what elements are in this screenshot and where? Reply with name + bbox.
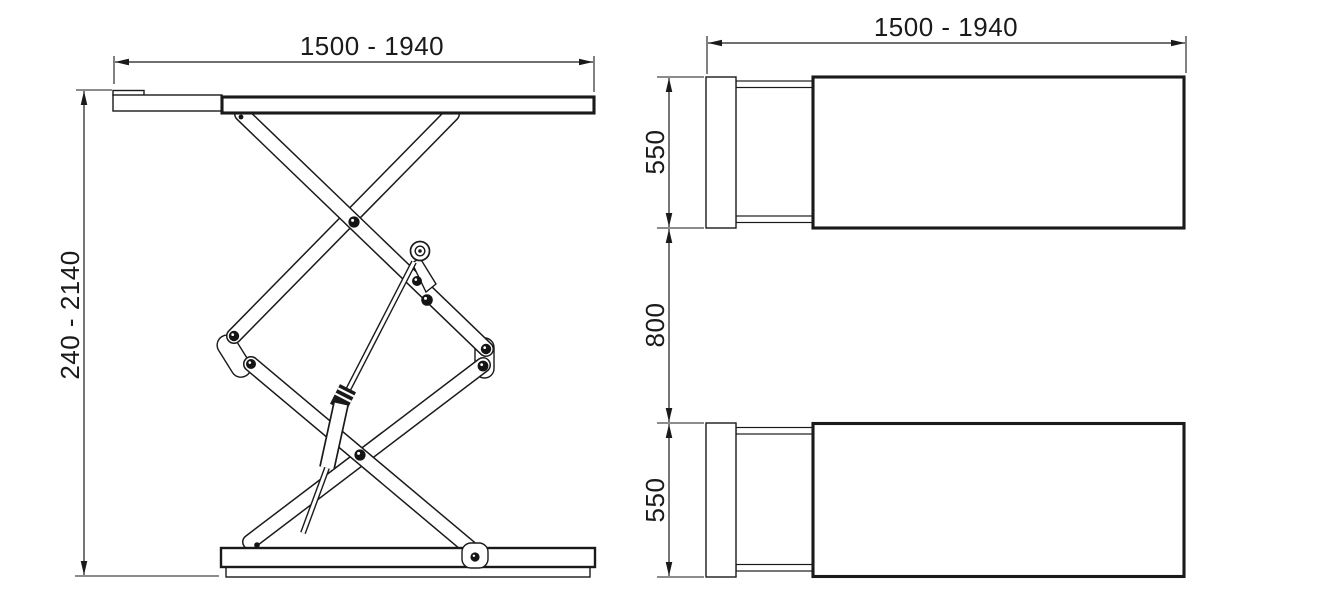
- extension-end-cap: [706, 423, 736, 577]
- pivot-bolt: [246, 359, 256, 369]
- upper-platform-plan: [706, 77, 1184, 228]
- base-beam: [221, 548, 595, 567]
- platform-extension: [113, 95, 222, 111]
- platform-surface: [813, 424, 1184, 577]
- side-width-dimension: 1500 - 1940: [114, 31, 594, 92]
- top-length-dimension-label: 1500 - 1940: [874, 12, 1018, 42]
- extension-rail: [736, 81, 814, 88]
- base-frame: [221, 543, 595, 577]
- platform-gap-label: 800: [640, 303, 670, 348]
- cylinder-top-pivot: [411, 242, 430, 261]
- platform-deck: [222, 97, 594, 113]
- pivot-bolt: [254, 542, 260, 548]
- side-height-dimension-label: 240 - 2140: [55, 250, 85, 379]
- side-width-dimension-label: 1500 - 1940: [300, 31, 444, 61]
- scissor-lift-technical-drawing: 1500 - 1940 240 - 2140: [0, 0, 1320, 616]
- scissor-mechanism: [213, 114, 494, 548]
- side-height-dimension: 240 - 2140: [55, 90, 219, 576]
- pivot-bolt: [239, 115, 244, 120]
- top-length-dimension: 1500 - 1940: [707, 12, 1186, 74]
- top-platform-width-label: 550: [640, 130, 670, 175]
- pivot-bolts: [229, 115, 491, 562]
- lower-platform-plan: [706, 423, 1184, 577]
- drawing-canvas: 1500 - 1940 240 - 2140: [0, 0, 1320, 616]
- side-view: 1500 - 1940 240 - 2140: [55, 31, 595, 577]
- pivot-bolt: [354, 449, 365, 460]
- extension-rail: [736, 216, 814, 223]
- platform-surface: [813, 77, 1184, 228]
- pivot-bolt: [421, 294, 433, 306]
- bottom-platform-width-label: 550: [640, 478, 670, 523]
- extension-rail: [736, 428, 814, 435]
- lift-platform: [113, 91, 594, 114]
- pivot-bolt: [481, 344, 491, 354]
- pivot-bolt: [412, 276, 422, 286]
- pivot-bolt: [348, 216, 359, 227]
- pivot-bolt: [229, 331, 239, 341]
- pivot-bolt: [470, 552, 479, 561]
- extension-end-cap: [706, 77, 736, 228]
- extension-rail: [736, 565, 814, 572]
- top-view: 1500 - 1940 550 800 550: [640, 12, 1186, 577]
- top-width-dimensions: 550 800 550: [640, 77, 704, 577]
- pivot-bolt: [478, 361, 489, 372]
